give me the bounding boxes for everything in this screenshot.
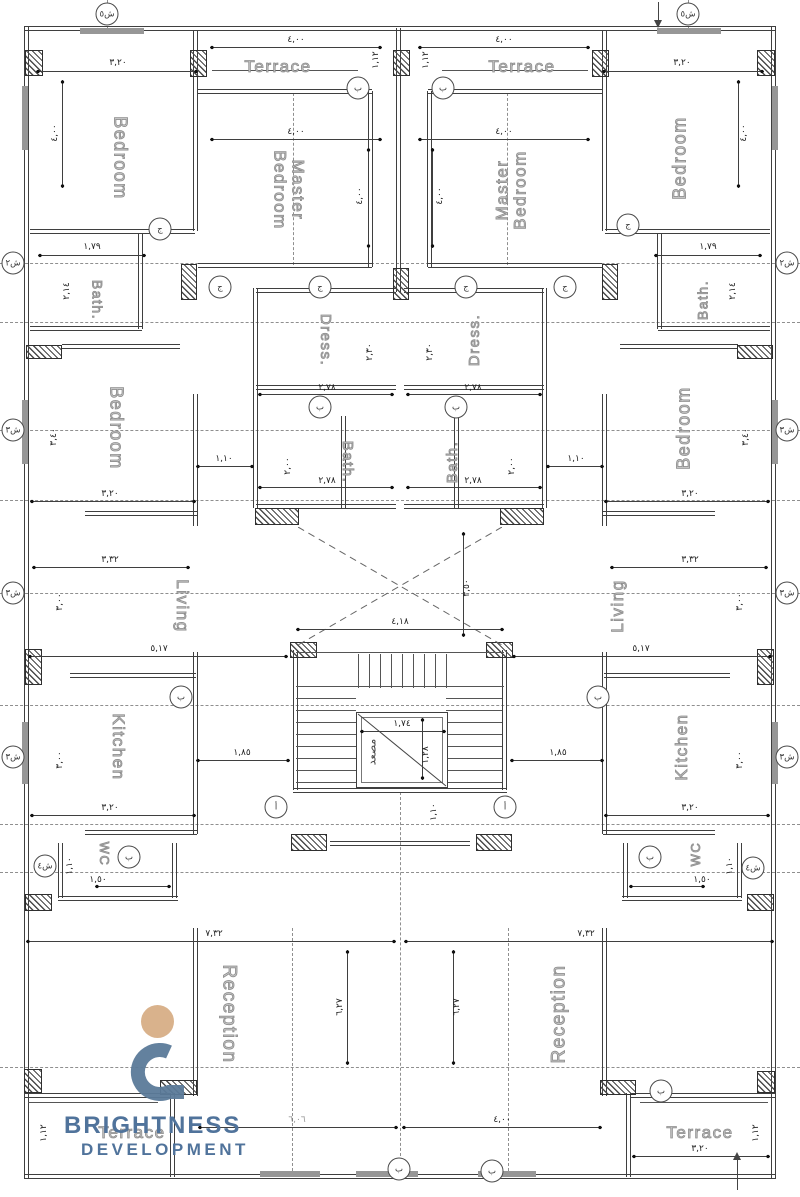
window-band xyxy=(657,28,721,34)
dimension: ٣,٢٠ xyxy=(109,58,126,68)
dimension-line xyxy=(418,137,590,142)
stair-tread xyxy=(296,758,356,759)
dimension-line xyxy=(510,758,604,763)
stair-tread xyxy=(369,654,370,688)
detail-bubble: أ xyxy=(265,796,288,819)
dimension: ٤,٠٠ xyxy=(495,127,512,137)
wall xyxy=(193,652,198,834)
detail-bubble: ب xyxy=(170,686,193,709)
column xyxy=(747,894,774,911)
leader-arrow-icon xyxy=(658,2,659,22)
wall xyxy=(24,26,29,1179)
dimension-line xyxy=(296,627,504,632)
grid-bubble: ش٥ xyxy=(96,3,119,26)
dimension: ٣,٢٠ xyxy=(681,489,698,499)
wall xyxy=(85,830,197,835)
logo-text-brand: BRIGHTNESS xyxy=(64,1112,241,1140)
wall xyxy=(626,1093,631,1177)
window-band xyxy=(772,86,778,150)
dimension: ٣,٣٢ xyxy=(101,555,118,565)
grid-bubble: ش٣ xyxy=(2,419,25,442)
room-label-master-bedroom-left: MasterBedroom xyxy=(270,150,307,229)
column xyxy=(26,345,62,359)
wall xyxy=(30,326,142,331)
wall xyxy=(502,650,507,790)
wall xyxy=(293,788,507,793)
dimension-line xyxy=(32,565,190,570)
room-label-terrace-top-right: Terrace xyxy=(488,58,555,76)
dimension: ٣,٢٠ xyxy=(681,803,698,813)
stair-tread xyxy=(446,698,502,699)
stair-tread xyxy=(296,722,356,723)
column xyxy=(255,508,299,525)
room-label-living-right: Living xyxy=(609,579,627,632)
stair-tread xyxy=(446,734,502,735)
detail-bubble: ب xyxy=(309,396,332,419)
wall xyxy=(603,511,715,516)
room-label-reception-left: Reception xyxy=(218,964,239,1063)
dimension: ٤,١٨ xyxy=(391,617,408,627)
column xyxy=(600,1080,636,1095)
room-label-wc-left: WC xyxy=(97,842,111,867)
dimension: ٤,٠٠ xyxy=(435,187,445,204)
wall xyxy=(602,928,607,1096)
master-line2: Bedroom xyxy=(270,150,288,229)
detail-bubble: ج xyxy=(455,276,478,299)
leader-arrow-icon xyxy=(654,20,662,28)
wall xyxy=(602,652,607,834)
column xyxy=(757,1071,775,1093)
dimension: ١,١٢ xyxy=(39,1124,49,1141)
dimension-line xyxy=(196,758,290,763)
dimension: ٤,٠٠ xyxy=(493,1115,510,1125)
dimension: ٢,٣٠ xyxy=(425,343,435,360)
room-label-bedroom-top-left: Bedroom xyxy=(110,116,129,200)
dimension: ٥,١٧ xyxy=(632,644,649,654)
stair-tread xyxy=(424,654,425,688)
stair-tread xyxy=(446,770,502,771)
room-label-master-bedroom-right: MasterBedroom xyxy=(494,150,531,229)
wall xyxy=(771,26,776,1179)
dimension: ٢,٣٠ xyxy=(365,343,375,360)
wall xyxy=(428,263,602,268)
room-label-bath-top-right: Bath. xyxy=(695,280,710,320)
dimension: ١,٨٥ xyxy=(549,748,566,758)
dimension-line xyxy=(28,654,288,659)
room-label-kitchen-left: Kitchen xyxy=(109,713,127,780)
stair-tread xyxy=(296,734,356,735)
dimension: ٢,٧٨ xyxy=(318,476,335,486)
stair-tread xyxy=(296,710,356,711)
dimension-line xyxy=(418,45,590,50)
wall xyxy=(603,830,715,835)
dimension-line xyxy=(604,813,770,818)
dimension-line xyxy=(345,950,350,1065)
dimension-line xyxy=(26,939,396,944)
dimension: ٣,٢٠ xyxy=(101,489,118,499)
grid-bubble: ش٣ xyxy=(2,582,25,605)
dimension: ٢,٧٨ xyxy=(464,476,481,486)
dimension: ١,٨٥ xyxy=(233,748,250,758)
dimension: ١,١٢ xyxy=(371,51,381,68)
room-label-bath-top-left: Bath. xyxy=(89,280,104,320)
wall xyxy=(193,928,198,1096)
stair-tread xyxy=(380,654,381,688)
dimension: ٤,٠٠ xyxy=(495,35,512,45)
dimension: ١,٥٠ xyxy=(89,875,106,885)
stair-edge xyxy=(296,686,504,687)
detail-bubble: ج xyxy=(554,276,577,299)
dimension-line xyxy=(30,499,196,504)
stair-edge xyxy=(296,652,504,653)
dimension-line xyxy=(512,654,772,659)
master-line1: Master xyxy=(288,150,306,229)
window-band xyxy=(80,28,144,34)
dimension-line xyxy=(60,80,65,188)
detail-bubble: ج xyxy=(149,218,172,241)
dimension: ١,٥٠ xyxy=(693,875,710,885)
dimension: ٢,٠٠ xyxy=(283,457,293,474)
stair-tread xyxy=(296,746,356,747)
dimension-line xyxy=(38,253,146,258)
detail-bubble: ج xyxy=(209,276,232,299)
column xyxy=(393,268,409,300)
dimension: ١,١٢ xyxy=(421,51,431,68)
room-label-terrace-bottom-right: Terrace xyxy=(666,1124,733,1142)
dimension-line xyxy=(632,1154,770,1159)
dimension-line xyxy=(654,253,762,258)
room-label-bedroom-mid-right: Bedroom xyxy=(674,386,693,470)
detail-bubble: ب xyxy=(388,1158,411,1181)
stair-tread xyxy=(296,782,356,783)
wall xyxy=(542,288,547,508)
room-label-dress-left: Dress. xyxy=(317,314,333,366)
stair-tread xyxy=(402,654,403,688)
room-label-bath-mid-right: Bath. xyxy=(445,441,461,484)
room-label-wc-right: WC xyxy=(689,842,703,867)
column xyxy=(737,345,773,359)
grid-bubble: ش٥ xyxy=(677,3,700,26)
room-label-reception-right: Reception xyxy=(550,964,571,1063)
column xyxy=(291,834,327,851)
dimension: ٣,٠٠ xyxy=(55,593,65,610)
column xyxy=(25,894,52,911)
grid-centerline xyxy=(0,322,800,323)
dimension-line xyxy=(404,939,774,944)
dimension: ٤,٠٠ xyxy=(50,124,60,141)
column xyxy=(181,264,197,300)
dimension-line xyxy=(360,729,446,734)
dimension: ٤,٠٠ xyxy=(287,127,304,137)
room-label-terrace-top-left: Terrace xyxy=(244,58,311,76)
detail-bubble: ب xyxy=(347,77,370,100)
wall xyxy=(293,650,298,790)
column xyxy=(393,50,410,76)
wall xyxy=(253,288,258,508)
grid-bubble: ش٣ xyxy=(2,746,25,769)
grid-bubble: ش٢ xyxy=(2,252,25,275)
dimension-line xyxy=(210,45,382,50)
wall xyxy=(138,233,143,329)
dimension: ١,٧٤ xyxy=(393,719,410,729)
dimension: ١,١٢ xyxy=(751,1124,761,1141)
detail-bubble: ب xyxy=(481,1160,504,1183)
stair-tread xyxy=(391,654,392,688)
room-label-bedroom-mid-left: Bedroom xyxy=(106,386,125,470)
stair-tread xyxy=(296,698,356,699)
column xyxy=(24,1069,42,1093)
dimension: ١,١٠ xyxy=(215,454,232,464)
wall xyxy=(602,394,607,526)
floor-plan: مصعد ٣,٢٠ ٣,٢٠ ٤,٠٠ ٤,٠٠ ٤,٠٠ ٤,٠٠ ٤,٠٠ … xyxy=(0,0,800,1197)
dimension: ١,١٠ xyxy=(725,857,735,874)
grid-bubble: ش٣ xyxy=(776,419,799,442)
grid-centerline xyxy=(508,928,509,1176)
master-line1: Master xyxy=(494,150,512,229)
dimension-line xyxy=(36,69,198,74)
dimension: ٦,٢٧ xyxy=(335,998,345,1015)
dimension: ١,٧٩ xyxy=(83,242,100,252)
detail-bubble: ب xyxy=(587,686,610,709)
wall xyxy=(657,233,662,329)
dimension-line xyxy=(610,565,768,570)
room-label-bedroom-top-right: Bedroom xyxy=(670,116,689,200)
wall xyxy=(620,344,738,349)
stair-tread xyxy=(413,654,414,688)
dimension: ٤,٠٠ xyxy=(287,35,304,45)
dimension: ٣,٠٠ xyxy=(735,593,745,610)
leader-arrow-icon xyxy=(733,1152,741,1160)
room-label-dress-right: Dress. xyxy=(467,314,483,366)
stair-tread xyxy=(446,722,502,723)
dimension: ١,١٠ xyxy=(567,454,584,464)
wall xyxy=(85,511,197,516)
dimension: ٤,٠٠ xyxy=(355,187,365,204)
detail-bubble: ج xyxy=(309,276,332,299)
dimension: ١,٢٨ xyxy=(421,746,431,763)
dimension: ١,١٠ xyxy=(429,803,439,820)
dimension: ٧,٣٢ xyxy=(205,929,222,939)
wall xyxy=(172,843,177,898)
dimension: ٤,٠٠ xyxy=(739,124,749,141)
dimension: ٢,١٤ xyxy=(62,282,72,299)
leader-arrow-icon xyxy=(737,1160,738,1190)
wall xyxy=(623,843,628,898)
stair-tread xyxy=(446,782,502,783)
stair-tread xyxy=(358,654,359,688)
detail-bubble: ب xyxy=(650,1080,673,1103)
dimension: ٢,١٤ xyxy=(728,282,738,299)
room-label-living-left: Living xyxy=(173,579,191,632)
window-band xyxy=(22,86,28,150)
room-label-kitchen-right: Kitchen xyxy=(673,713,691,780)
stair-tread xyxy=(296,770,356,771)
column xyxy=(500,508,544,525)
dimension-line xyxy=(402,1125,602,1130)
dimension: ٦,٠٦ xyxy=(288,1115,305,1125)
dimension: ٣,٢٠ xyxy=(691,1144,708,1154)
master-line2: Bedroom xyxy=(512,150,530,229)
dimension: ٣,٣٢ xyxy=(681,555,698,565)
dimension: ٣,٤٠ xyxy=(49,428,59,445)
dimension-line xyxy=(210,137,382,142)
stair-tread xyxy=(446,710,502,711)
wall xyxy=(198,263,372,268)
wall xyxy=(604,673,730,678)
grid-centerline xyxy=(292,928,293,1176)
grid-bubble: ش٣ xyxy=(776,582,799,605)
dimension-line xyxy=(602,69,764,74)
wall xyxy=(58,896,178,901)
dimension: ٧,٣٢ xyxy=(577,929,594,939)
dimension: ٣,٤٠ xyxy=(741,428,751,445)
stair-tread xyxy=(446,758,502,759)
dimension: ١,٧٩ xyxy=(699,242,716,252)
dimension: ٣,٥٠ xyxy=(462,579,472,596)
logo-text-sub: DEVELOPMENT xyxy=(81,1140,249,1160)
grid-bubble: ش٤ xyxy=(34,855,57,878)
detail-bubble: ب xyxy=(639,846,662,869)
column xyxy=(602,264,618,300)
grid-centerline xyxy=(0,705,800,706)
stair-tread xyxy=(446,654,447,688)
dimension: ٢,٧٨ xyxy=(318,383,335,393)
window-band xyxy=(260,1171,320,1177)
detail-bubble: ب xyxy=(118,846,141,869)
dimension-line xyxy=(546,464,604,469)
grid-bubble: ش٤ xyxy=(742,857,765,880)
dimension: ٥,١٧ xyxy=(150,644,167,654)
room-label-elevator: مصعد xyxy=(366,739,379,766)
logo-circle-icon xyxy=(141,1005,174,1038)
room-label-bath-mid-left: Bath. xyxy=(339,441,355,484)
detail-bubble: أ xyxy=(494,796,517,819)
detail-bubble: ب xyxy=(445,396,468,419)
dimension: ٣,٠٠ xyxy=(735,751,745,768)
grid-bubble: ش٢ xyxy=(776,252,799,275)
dimension: ٢,٧٨ xyxy=(464,383,481,393)
dimension: ٣,٢٠ xyxy=(101,803,118,813)
column xyxy=(476,834,512,851)
detail-bubble: ج xyxy=(617,214,640,237)
wall xyxy=(330,841,470,846)
dimension-line xyxy=(196,464,254,469)
wall xyxy=(62,344,180,349)
stair-tread xyxy=(446,746,502,747)
dimension-line xyxy=(604,499,770,504)
grid-bubble: ش٣ xyxy=(776,746,799,769)
dimension-line xyxy=(30,813,196,818)
dimension: ٦,٢٧ xyxy=(452,998,462,1015)
wall xyxy=(193,394,198,526)
detail-bubble: ب xyxy=(432,77,455,100)
wall xyxy=(58,843,63,898)
logo-mark-icon xyxy=(124,1042,186,1104)
dimension-line xyxy=(366,148,371,248)
stair-tread xyxy=(435,654,436,688)
dimension: ١,١٠ xyxy=(65,857,75,874)
wall xyxy=(70,673,196,678)
dimension: ٣,٠٠ xyxy=(55,751,65,768)
wall xyxy=(658,326,770,331)
dimension: ٣,٢٠ xyxy=(673,58,690,68)
wall xyxy=(622,896,742,901)
dimension: ٢,٠٠ xyxy=(507,457,517,474)
grid-centerline xyxy=(400,792,401,1176)
